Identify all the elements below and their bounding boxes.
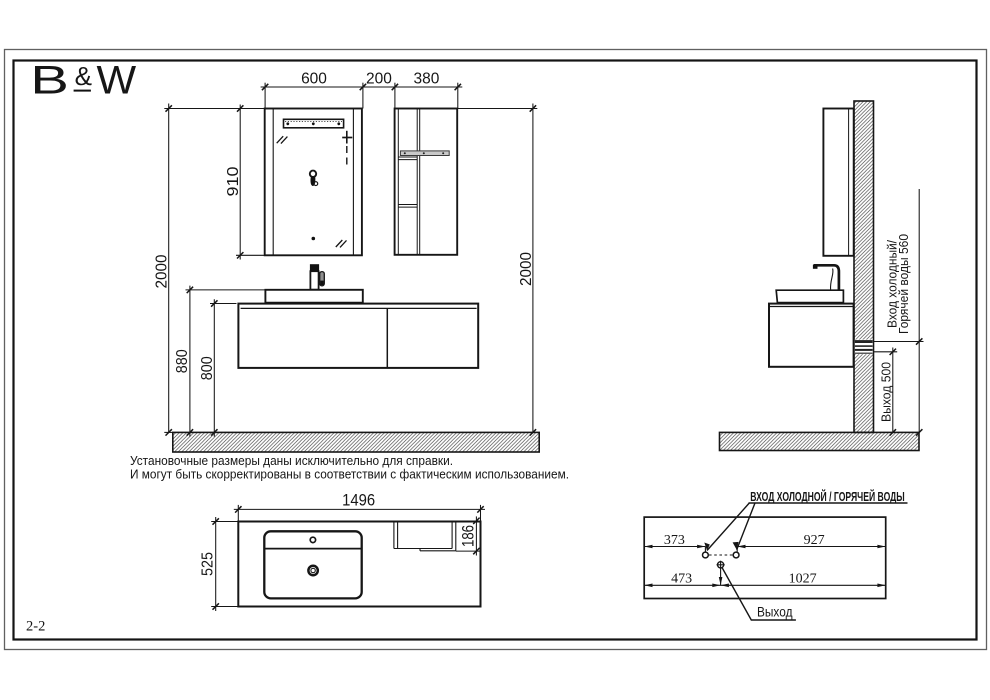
svg-text:800: 800 <box>199 356 216 380</box>
svg-text:ВХОД ХОЛОДНОЙ / ГОРЯЧЕЙ ВОДЫ: ВХОД ХОЛОДНОЙ / ГОРЯЧЕЙ ВОДЫ <box>750 489 905 504</box>
svg-text:Выход: Выход <box>757 604 793 619</box>
svg-text:880: 880 <box>174 349 191 373</box>
svg-text:473: 473 <box>671 572 692 587</box>
svg-text:B: B <box>30 57 69 102</box>
svg-text:525: 525 <box>200 552 217 576</box>
svg-text:2000: 2000 <box>154 254 171 288</box>
svg-text:380: 380 <box>413 71 439 88</box>
svg-text:186: 186 <box>460 525 478 547</box>
svg-text:&: & <box>75 61 92 91</box>
svg-text:600: 600 <box>301 71 327 88</box>
svg-text:927: 927 <box>804 533 825 548</box>
svg-text:W: W <box>97 58 137 103</box>
svg-text:2000: 2000 <box>518 252 535 286</box>
svg-text:373: 373 <box>664 533 685 548</box>
svg-text:1027: 1027 <box>789 572 817 587</box>
svg-text:910: 910 <box>225 166 242 196</box>
svg-text:1496: 1496 <box>342 492 375 510</box>
svg-text:200: 200 <box>366 71 392 88</box>
svg-text:2-2: 2-2 <box>26 619 45 635</box>
svg-text:Вход холодный/Горячей воды 560: Вход холодный/Горячей воды 560 <box>886 234 912 334</box>
svg-text:Выход 500: Выход 500 <box>880 362 894 422</box>
svg-text:И могут быть скорректированы в: И могут быть скорректированы в соответст… <box>130 467 569 482</box>
